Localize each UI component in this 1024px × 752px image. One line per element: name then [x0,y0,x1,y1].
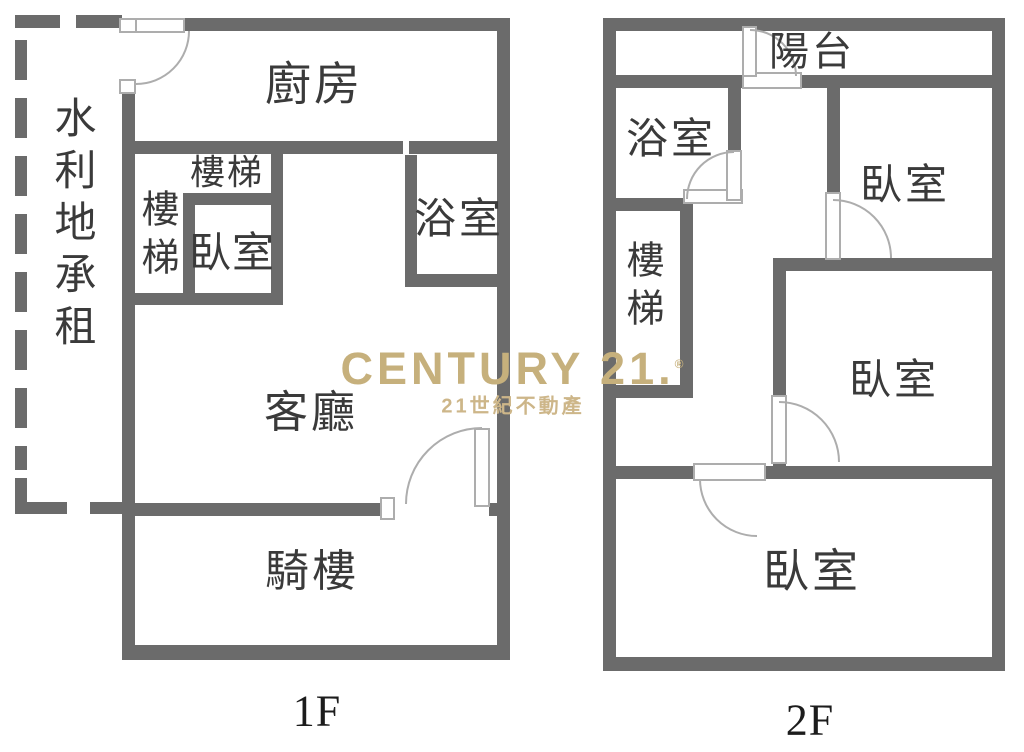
f2-bathroom-label: 浴室 [626,118,716,160]
century21-watermark-subtitle: 21世紀不動產 [441,390,584,419]
f2-balcony-label: 陽台 [769,32,855,72]
f1-main-door-leaf [475,429,489,506]
f1-entry-door-arc [136,31,189,84]
f1-bedroom-label: 臥室 [189,232,275,274]
f1-living-room-label: 客廳 [264,391,358,435]
f2-bedroom-bottom-door-arc [700,479,757,536]
f1-floor-label: 1F [293,686,341,737]
f2-floor-label: 2F [786,695,834,746]
f1-main-door-arc [406,428,482,504]
f2-bedroom-middle-door-leaf [772,396,786,463]
f2-bedroom-bottom-door-leaf [694,464,765,480]
registered-mark: ® [675,357,684,371]
f1-arcade-label: 騎樓 [265,550,359,594]
f2-stairs-label: 樓梯 [623,240,661,336]
f1-kitchen-label: 廚房 [265,61,363,107]
f2-balcony-door-leaf [743,27,756,76]
f1-main-door-jamb [381,498,394,519]
f2-bedroom-bottom-label: 臥室 [763,548,861,594]
f1-leased-land-annotation: 水利地承租 [51,96,93,356]
f1-stairs-top-label: 樓梯 [190,157,264,192]
f1-entry-door-jamb-bottom [120,80,135,93]
century21-brand-text: CENTURY 21. [341,343,675,394]
f2-bedroom-top-label: 臥室 [860,164,950,206]
floorplan-canvas: 廚房 樓梯 樓梯 臥室 浴室 客廳 騎樓 水利地承租 1F 陽台 浴室 樓梯 臥… [0,0,1024,752]
f2-bedroom-top-door-leaf [826,193,840,259]
f1-bathroom-label: 浴室 [414,198,504,240]
f2-bedroom-middle-door-arc [779,402,839,462]
f2-bedroom-middle-label: 臥室 [849,359,939,401]
f1-entry-door-leaf [136,19,184,32]
f1-stairs-side-label: 樓梯 [138,189,176,285]
f2-bathroom-door-leaf [727,151,741,200]
f1-entry-door-jamb-top [120,19,136,32]
century21-watermark-logo: CENTURY 21.® [341,343,684,395]
